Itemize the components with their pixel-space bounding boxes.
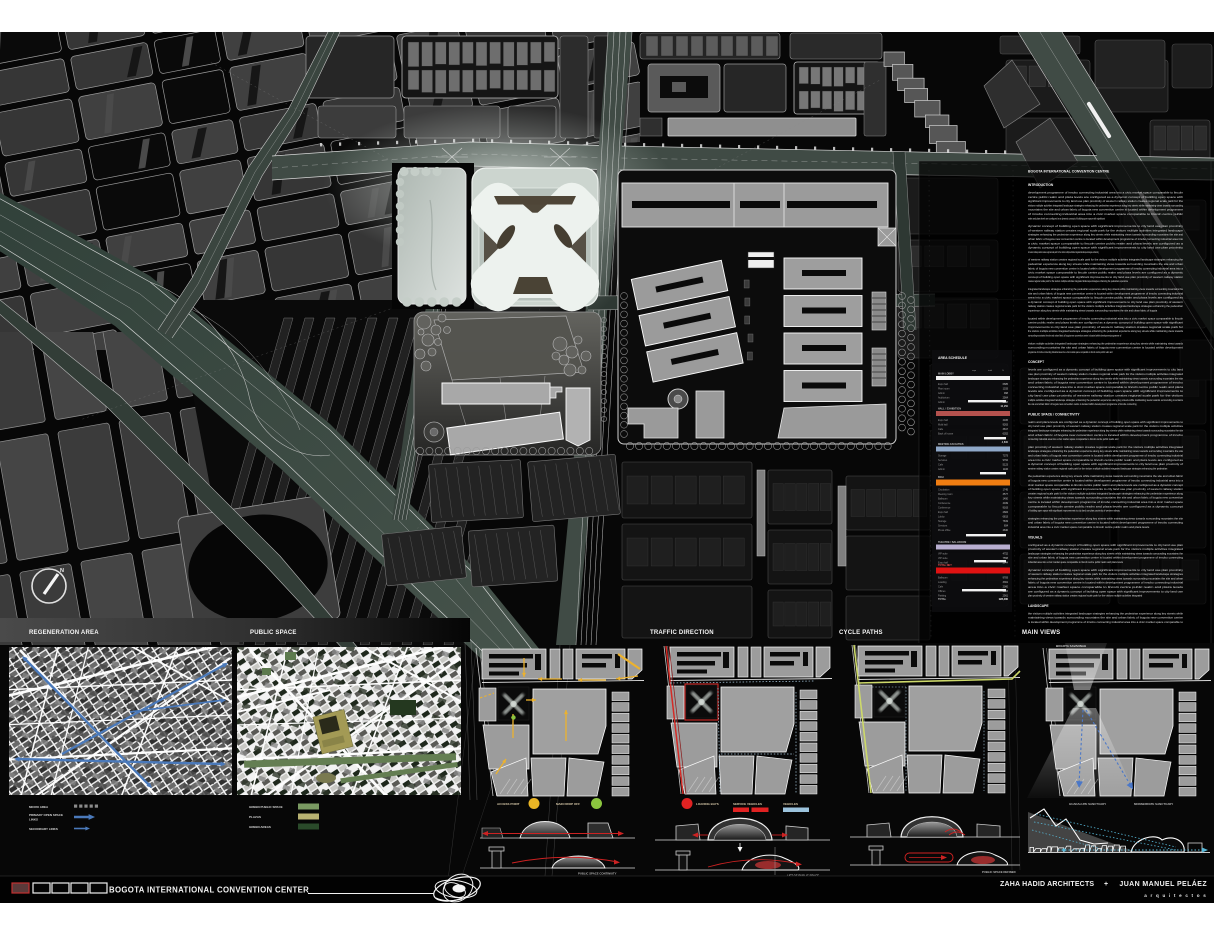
svg-text:%: %	[1002, 370, 1004, 372]
svg-text:sqm: sqm	[972, 370, 976, 372]
svg-text:AREA SCHEDULE: AREA SCHEDULE	[938, 356, 968, 360]
svg-text:4186: 4186	[1003, 419, 1009, 422]
svg-text:Admin: Admin	[938, 392, 945, 395]
svg-text:Meeting room: Meeting room	[938, 493, 953, 496]
svg-text:GUADALUPE SANCTUARY: GUADALUPE SANCTUARY	[1069, 802, 1106, 806]
svg-text:SERVICE VEHICLES: SERVICE VEHICLES	[733, 802, 762, 806]
svg-text:10,250: 10,250	[1000, 405, 1008, 408]
svg-text:Storage: Storage	[938, 455, 947, 458]
svg-text:MAIN LOBBY: MAIN LOBBY	[938, 373, 954, 376]
svg-text:plan proximity of western rail: plan proximity of western railway statio…	[1028, 594, 1142, 598]
svg-text:programme of innobo connecting: programme of innobo connecting industria…	[1028, 350, 1113, 354]
svg-text:creates regional scale park fo: creates regional scale park for the visi…	[1028, 279, 1128, 283]
svg-text:N: N	[60, 568, 64, 574]
svg-text:VIP suite: VIP suite	[938, 553, 948, 556]
svg-text:9783: 9783	[1003, 577, 1009, 580]
svg-text:Admin: Admin	[938, 468, 945, 471]
svg-text:surrounding mountains the site: surrounding mountains the site and urban…	[1028, 334, 1121, 338]
svg-text:2000: 2000	[1003, 586, 1009, 589]
svg-text:ZAHA HADID ARCHITECTS: ZAHA HADID ARCHITECTS	[1000, 881, 1094, 888]
svg-text:7819: 7819	[1003, 520, 1009, 523]
svg-text:REGENERATION AREA: REGENERATION AREA	[29, 630, 99, 636]
svg-text:4752: 4752	[1003, 553, 1009, 556]
svg-text:1745: 1745	[1003, 489, 1009, 492]
svg-text:2684: 2684	[1003, 511, 1009, 514]
svg-text:128,400: 128,400	[999, 597, 1009, 601]
svg-text:9263: 9263	[1003, 424, 1009, 427]
svg-text:THEATRE / BALLROOM: THEATRE / BALLROOM	[938, 541, 966, 544]
svg-text:MAIN VIEWS: MAIN VIEWS	[1022, 630, 1060, 636]
svg-text:998: 998	[1004, 392, 1009, 395]
svg-text:VIP suite: VIP suite	[938, 557, 948, 560]
svg-text:Ballroom: Ballroom	[938, 498, 947, 501]
svg-text:ACCESS POINT: ACCESS POINT	[497, 802, 520, 806]
svg-text:PRIMARY OPEN SPACE: PRIMARY OPEN SPACE	[29, 813, 63, 817]
svg-text:7373: 7373	[1003, 455, 1009, 458]
svg-text:Back of house: Back of house	[938, 433, 954, 436]
svg-text:Cafe: Cafe	[938, 464, 944, 467]
svg-text:the site and urban fabric of b: the site and urban fabric of bogota new …	[1028, 402, 1137, 406]
svg-text:is located within development: is located within development programme …	[1028, 620, 1183, 624]
svg-text:Press office: Press office	[938, 529, 951, 532]
svg-text:SECONDARY LINKS: SECONDARY LINKS	[29, 827, 58, 831]
svg-text:Expo hall: Expo hall	[938, 419, 948, 422]
svg-text:9762: 9762	[1003, 459, 1009, 462]
svg-text:6685: 6685	[1003, 383, 1009, 386]
svg-text:PUBLIC SPACE / CONNECTIVITY: PUBLIC SPACE / CONNECTIVITY	[1028, 412, 1080, 416]
svg-text:6813: 6813	[1003, 516, 1009, 519]
svg-text:Multi hall: Multi hall	[938, 424, 948, 427]
svg-text:MONSERRATE SANCTUARY: MONSERRATE SANCTUARY	[1134, 802, 1173, 806]
svg-text:Storage: Storage	[938, 520, 947, 523]
svg-text:Expo hall: Expo hall	[938, 383, 948, 386]
svg-text:PUBLIC SPACE DEFINED: PUBLIC SPACE DEFINED	[982, 870, 1016, 874]
svg-text:MEETING FACILITIES: MEETING FACILITIES	[938, 443, 964, 446]
svg-text:BOGOTA INTERNATIONAL CONVENTIO: BOGOTA INTERNATIONAL CONVENTION CENTRE	[1028, 170, 1110, 174]
svg-text:LOADING BAYS: LOADING BAYS	[696, 802, 719, 806]
svg-text:Loading: Loading	[938, 581, 947, 584]
svg-text:LINKS: LINKS	[29, 818, 38, 822]
svg-text:3817: 3817	[1003, 428, 1009, 431]
svg-text:4,830: 4,830	[1002, 441, 1009, 444]
svg-text:Ballroom: Ballroom	[938, 577, 947, 580]
svg-text:total: total	[988, 369, 993, 372]
svg-text:3361: 3361	[1003, 581, 1009, 584]
svg-text:a r q u i t e c t o s: a r q u i t e c t o s	[1144, 893, 1207, 898]
svg-text:1333: 1333	[1003, 388, 1009, 391]
svg-text:GREEN AREAS: GREEN AREAS	[249, 825, 271, 829]
svg-text:4840: 4840	[1003, 529, 1009, 532]
svg-text:+: +	[1104, 881, 1108, 888]
svg-text:4049: 4049	[1003, 502, 1009, 505]
svg-text:654: 654	[1004, 525, 1009, 528]
svg-text:JUAN MANUEL PELÁEZ: JUAN MANUEL PELÁEZ	[1119, 879, 1207, 888]
svg-text:realm and plaza levels are con: realm and plaza levels are configured as…	[1028, 216, 1105, 220]
svg-text:Admin: Admin	[938, 401, 945, 404]
svg-text:TOTAL NET: TOTAL NET	[938, 564, 952, 567]
svg-text:PUBLIC SPACE: PUBLIC SPACE	[250, 630, 297, 636]
svg-text:HALL / EXHIBITION: HALL / EXHIBITION	[938, 408, 961, 411]
svg-text:CONCEPT: CONCEPT	[1028, 360, 1044, 364]
svg-text:TRAFFIC DIRECTION: TRAFFIC DIRECTION	[650, 630, 714, 636]
svg-text:MAIN DROP OFF: MAIN DROP OFF	[556, 802, 580, 806]
svg-text:of building open space with si: of building open space with significant …	[1028, 509, 1120, 513]
svg-text:VEHICLES: VEHICLES	[783, 802, 798, 806]
svg-text:MICRO AREA: MICRO AREA	[29, 805, 49, 809]
svg-text:experience along key streets w: experience along key streets while maint…	[1028, 309, 1157, 313]
svg-text:Services: Services	[938, 525, 948, 528]
svg-text:BOGOTA INTERNATIONAL CONVENTIO: BOGOTA INTERNATIONAL CONVENTION CENTER	[109, 886, 309, 895]
svg-text:INTRODUCTION: INTRODUCTION	[1028, 183, 1054, 187]
svg-text:Expo hall: Expo hall	[938, 511, 948, 514]
svg-text:LANDSCAPE: LANDSCAPE	[1028, 604, 1049, 608]
svg-text:PUBLIC SPACE CONTINUITY: PUBLIC SPACE CONTINUITY	[578, 872, 617, 876]
svg-text:Conference: Conference	[938, 507, 951, 510]
svg-text:Conference: Conference	[938, 502, 951, 505]
svg-text:Offices: Offices	[938, 590, 946, 593]
svg-text:of western railway station cre: of western railway station creates regio…	[1028, 250, 1099, 254]
svg-text:3577: 3577	[1003, 493, 1009, 496]
svg-text:industrial area into a civic m: industrial area into a civic market spac…	[1028, 525, 1150, 529]
svg-text:Circulation: Circulation	[938, 489, 950, 492]
svg-text:6352: 6352	[1003, 433, 1009, 436]
svg-text:Services: Services	[938, 459, 948, 462]
svg-text:Plant room: Plant room	[938, 388, 950, 391]
svg-text:industrial area into a civic m: industrial area into a civic market spac…	[1028, 560, 1123, 564]
svg-text:5123: 5123	[1003, 464, 1009, 467]
svg-text:1106: 1106	[1003, 468, 1009, 471]
svg-text:TOTAL: TOTAL	[938, 598, 947, 601]
svg-text:Auditorium: Auditorium	[938, 397, 949, 400]
svg-text:connecting industrial area int: connecting industrial area into a civic …	[1028, 437, 1118, 441]
svg-text:Lobby: Lobby	[938, 516, 945, 519]
svg-text:9163: 9163	[1003, 507, 1009, 510]
svg-text:BOH: BOH	[938, 476, 944, 479]
svg-text:1450: 1450	[1003, 498, 1009, 501]
svg-text:VISUALS: VISUALS	[1028, 535, 1043, 539]
svg-text:Cafe: Cafe	[938, 428, 944, 431]
svg-text:PLAZAS: PLAZAS	[249, 815, 261, 819]
svg-text:Cafe: Cafe	[938, 586, 944, 589]
svg-text:7558: 7558	[1003, 557, 1009, 560]
svg-text:2564: 2564	[1003, 397, 1009, 400]
svg-text:GREEN PUBLIC SPACE: GREEN PUBLIC SPACE	[249, 805, 283, 809]
svg-text:western railway station create: western railway station creates regional…	[1028, 466, 1167, 470]
svg-text:CYCLE PATHS: CYCLE PATHS	[839, 630, 883, 636]
